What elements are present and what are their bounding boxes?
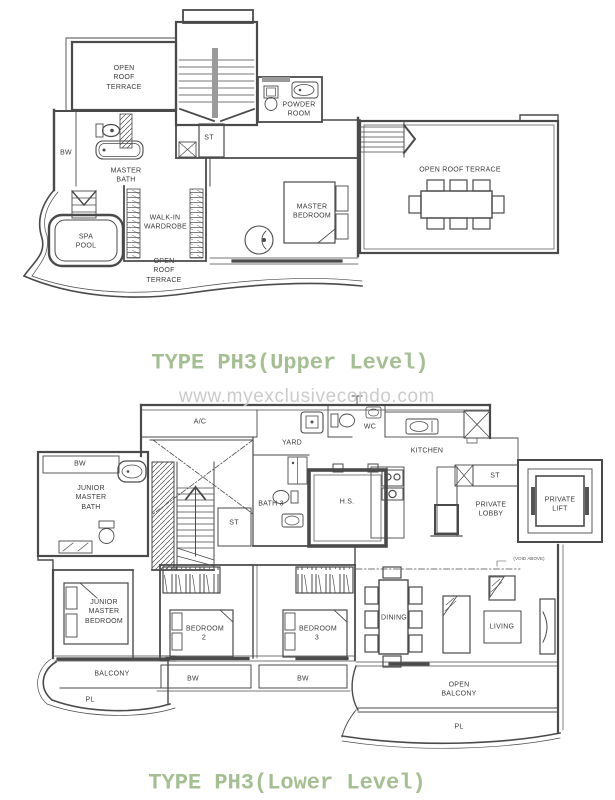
room-label-junior-master-bedroom: JUNIOR MASTER BEDROOM — [84, 598, 124, 626]
floorplan-page: OPEN ROOF TERRACE POWDER ROOM ST BW MAST… — [0, 0, 615, 800]
private-lobby-walls — [457, 438, 518, 535]
balcony-walls — [38, 659, 175, 715]
room-label-st-lobby: ST — [490, 471, 499, 480]
ac-ledge-icon — [455, 465, 473, 486]
bathtub-icon — [96, 141, 143, 159]
sink-icon — [118, 461, 146, 482]
toilet-icon — [96, 124, 120, 137]
door-hatch — [120, 114, 132, 148]
room-label-st-upper: ST — [204, 133, 213, 142]
armchair-icon — [245, 226, 273, 254]
room-label-bw-bedroom-3: BW — [297, 674, 309, 683]
room-label-master-bath: MASTER BATH — [110, 167, 142, 186]
upper-level-title: TYPE PH3(Upper Level) — [151, 351, 428, 376]
room-label-bw-bath: BW — [74, 459, 86, 468]
room-label-open-roof-terrace-bottom: OPEN ROOF TERRACE — [142, 257, 186, 285]
room-label-powder-room: POWDER ROOM — [281, 101, 317, 120]
room-label-open-balcony: OPEN BALCONY — [440, 681, 478, 700]
sofa-icon — [443, 596, 470, 653]
room-label-pl-left: PL — [85, 695, 94, 704]
terrace-right-walls — [360, 115, 558, 253]
bath3-walls — [253, 438, 386, 546]
sink-icon — [282, 514, 303, 527]
terrace-steps-icon — [360, 122, 415, 157]
watermark-text: www.myexclusivecondo.com — [179, 386, 435, 408]
room-label-walk-in-wardrobe: WALK-IN WARDROBE — [144, 214, 186, 233]
lower-level-title: TYPE PH3(Lower Level) — [148, 771, 425, 796]
room-label-balcony: BALCONY — [94, 669, 129, 678]
room-label-open-roof-terrace-topleft: OPEN ROOF TERRACE — [102, 64, 146, 92]
open-balcony-walls — [342, 545, 563, 748]
room-label-st-stair: ST — [229, 518, 238, 527]
kitchen-sink-icon — [406, 419, 438, 434]
ac-ledge-icon — [464, 405, 490, 443]
lower-level-plan — [38, 396, 602, 748]
void-leader-line — [497, 561, 506, 566]
wardrobe-icon — [296, 567, 353, 593]
side-table-icon — [489, 576, 515, 600]
room-label-pl-right: PL — [454, 722, 463, 731]
washer-icon — [301, 412, 323, 433]
room-label-yard: YARD — [282, 438, 302, 447]
toilet-icon — [99, 521, 114, 544]
room-label-bedroom-2: BEDROOM 2 — [186, 625, 222, 644]
dining-table-icon — [409, 180, 504, 229]
toilet-icon — [331, 414, 355, 427]
tv-console-icon — [540, 599, 555, 654]
room-label-spa-pool: SPA POOL — [75, 233, 97, 252]
room-label-bw-bedroom-2: BW — [187, 674, 199, 683]
ac-ledge-icon — [179, 142, 196, 157]
shower-icon — [59, 541, 92, 553]
room-label-junior-master-bath: JUNIOR MASTER BATH — [75, 484, 107, 512]
room-label-private-lift: PRIVATE LIFT — [543, 496, 577, 515]
wardrobe-icon — [163, 567, 220, 593]
bay-window-walls — [157, 665, 350, 691]
room-label-living: LIVING — [490, 622, 514, 631]
toilet-icon — [264, 86, 278, 111]
staircase-icon — [176, 10, 257, 125]
sink-icon — [366, 407, 381, 418]
room-label-private-lobby: PRIVATE LOBBY — [474, 501, 508, 520]
room-label-dining: DINING — [381, 613, 407, 622]
room-label-master-bedroom: MASTER BEDROOM — [292, 203, 332, 222]
shower-icon — [288, 457, 307, 484]
sink-icon — [292, 82, 318, 98]
annotation-void-above: (VOID ABOVE) — [513, 556, 544, 562]
room-label-kitchen: KITCHEN — [411, 446, 443, 455]
upper-level-plan — [24, 10, 558, 297]
room-label-hs: H.S. — [340, 497, 355, 506]
room-label-bw-upper: BW — [60, 148, 72, 157]
room-label-ac: A/C — [194, 417, 206, 426]
room-label-wc: WC — [364, 422, 376, 431]
room-label-open-roof-terrace-right: OPEN ROOF TERRACE — [419, 165, 501, 174]
room-label-bedroom-3: BEDROOM 3 — [299, 625, 335, 644]
room-label-bath-3: BATH 3 — [258, 499, 284, 508]
